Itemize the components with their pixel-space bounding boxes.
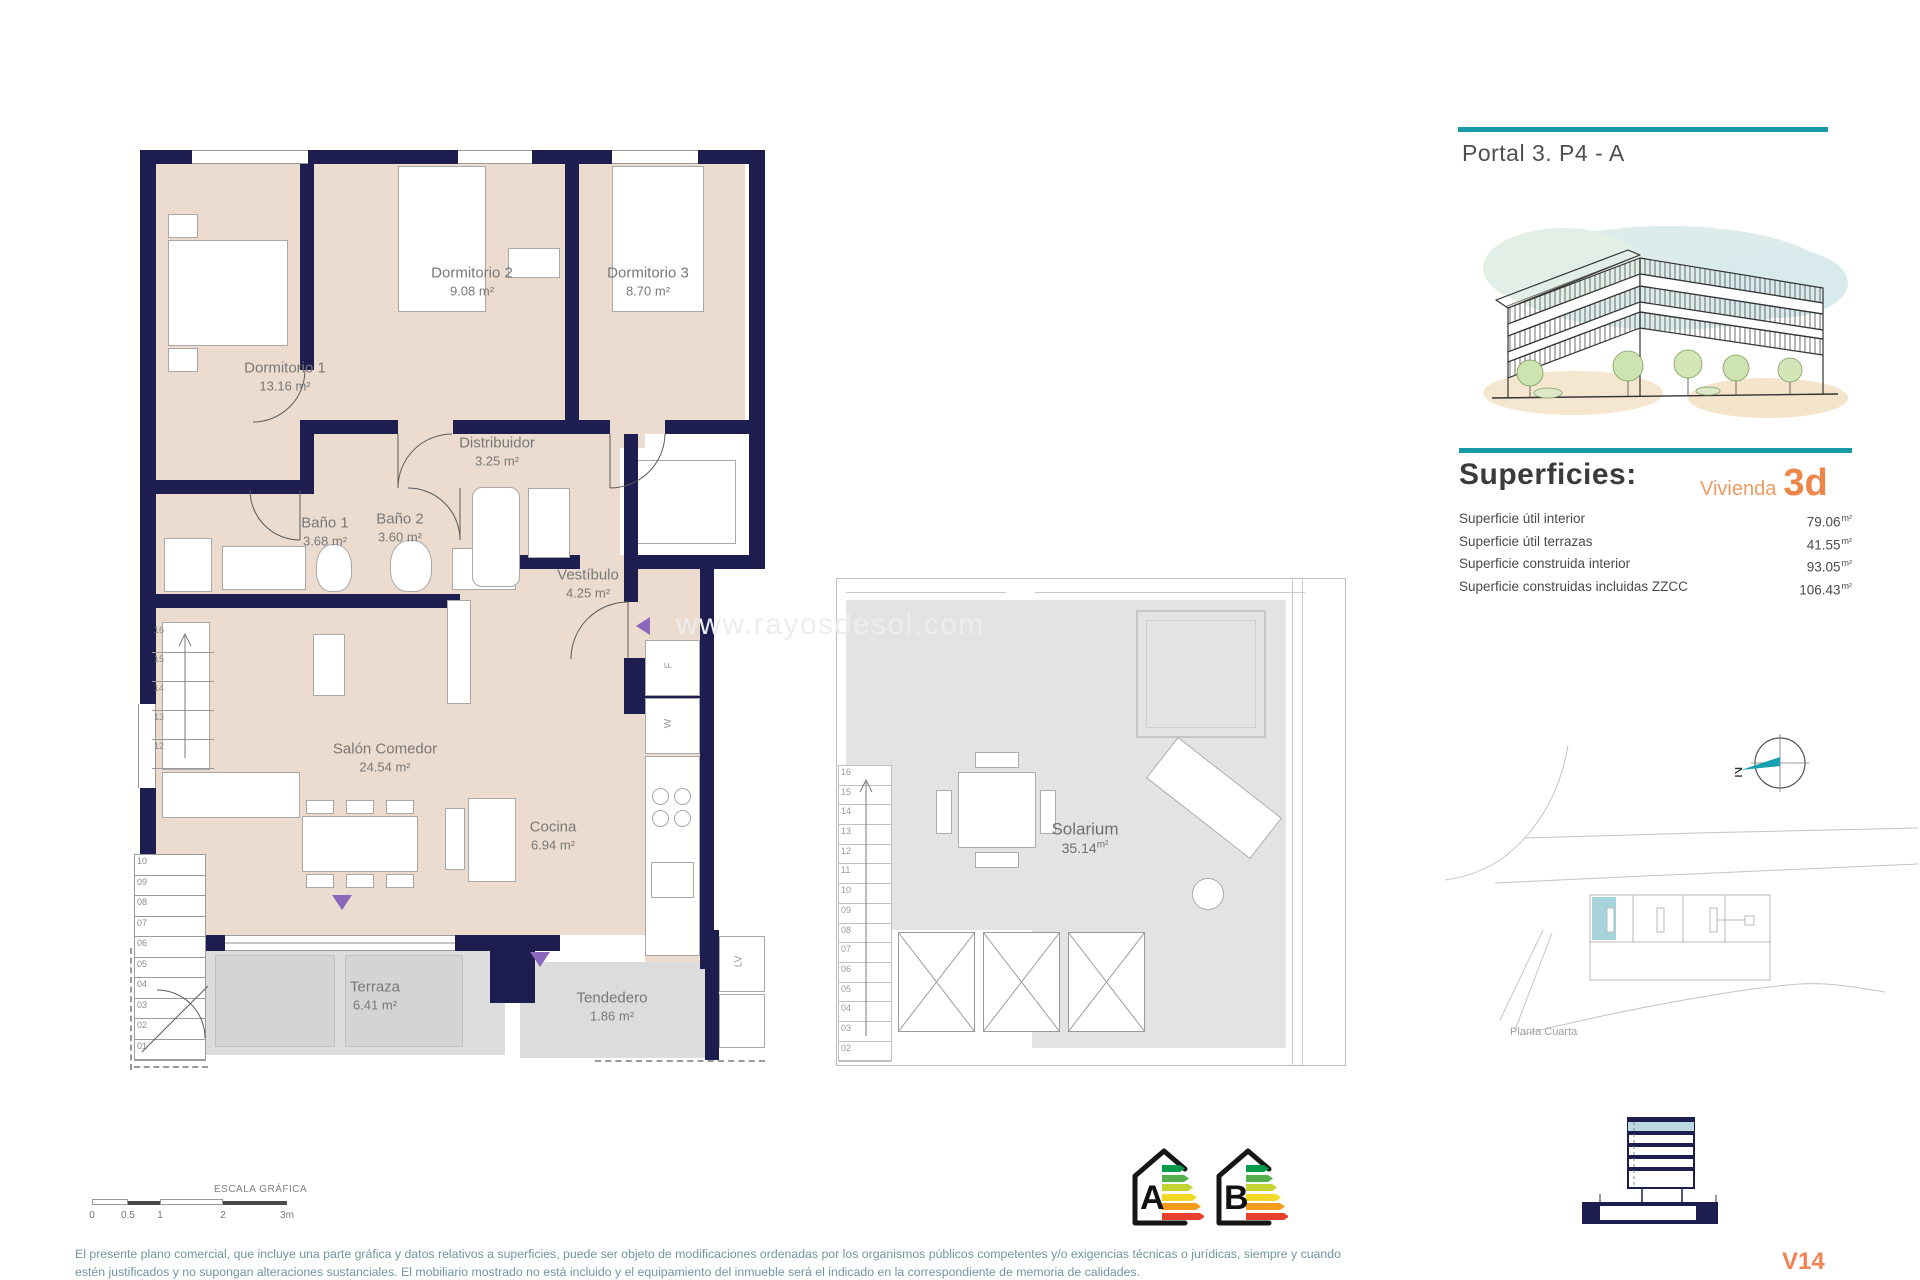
vivienda-code: Vivienda 3d <box>1700 462 1828 505</box>
stair-tread: 14 <box>152 682 214 711</box>
superficies-row-label: Superficie útil terrazas <box>1459 532 1593 555</box>
watermark: www.rayosdesol.com <box>676 608 985 642</box>
site-plan <box>1440 740 1920 1050</box>
stair-tread: 12 <box>152 740 214 769</box>
site-boundary-lines <box>1445 745 1918 1035</box>
superficies-table: Superficie útil interior 79.06m² Superfi… <box>1459 509 1852 599</box>
scale-tick: 1 <box>157 1210 163 1221</box>
scale-segment <box>223 1201 287 1205</box>
stair-tread: 13 <box>152 711 214 740</box>
stair-tread: 14 <box>839 805 891 825</box>
disclaimer-line-1: El presente plano comercial, que incluye… <box>75 1247 1341 1261</box>
stair-tread: 05 <box>135 958 205 979</box>
stair-tread: 03 <box>135 999 205 1020</box>
entry-marker <box>636 617 650 635</box>
stair-tread: 16 <box>152 624 214 653</box>
vivienda-number: 3d <box>1783 462 1827 505</box>
fridge-letter: F <box>664 662 675 668</box>
superficies-row: Superficie construida interior 93.05m² <box>1459 554 1852 577</box>
door-marker-terraza <box>332 895 352 910</box>
stair-tread: 09 <box>135 876 205 897</box>
stair-tread: 03 <box>839 1022 891 1042</box>
superficies-row-value: 93.05m² <box>1807 554 1852 577</box>
stair-tread: 02 <box>135 1019 205 1040</box>
stair-tread: 08 <box>135 896 205 917</box>
solarium-chair <box>975 852 1019 868</box>
room-label-dormitorio-1: Dormitorio 113.16 m² <box>244 360 326 395</box>
stair-tread: 07 <box>839 943 891 963</box>
pergola-inner <box>1146 620 1256 728</box>
superficies-row-label: Superficie construida interior <box>1459 554 1630 577</box>
superficies-title: Superficies: <box>1459 458 1637 492</box>
site-plan-caption: Planta Cuarta <box>1510 1026 1577 1038</box>
room-label-solarium: Solarium 35.14m² <box>1051 818 1118 857</box>
dishwasher-letter: LV <box>733 956 744 968</box>
vivienda-label: Vivienda <box>1700 478 1776 501</box>
stair-tread: 04 <box>839 1002 891 1022</box>
stair-tread: 13 <box>839 825 891 845</box>
stair-tread: 11 <box>839 864 891 884</box>
scale-tick: 2 <box>220 1210 226 1221</box>
highlighted-floor <box>1628 1122 1694 1131</box>
stair-tread: 10 <box>135 855 205 876</box>
stair-tread: 12 <box>839 845 891 865</box>
energy-rating-a-icon: A <box>1128 1143 1204 1235</box>
stairs-lower: 10090807060504030201 <box>134 854 206 1061</box>
building-section-icon <box>1570 1098 1730 1238</box>
stair-tread: 06 <box>135 937 205 958</box>
stair-tread: 06 <box>839 963 891 983</box>
room-label-dormitorio-2: Dormitorio 29.08 m² <box>431 265 513 300</box>
room-label-terraza: Terraza6.41 m² <box>350 979 400 1014</box>
energy-rating-b-icon: B <box>1212 1143 1288 1235</box>
solarium-stairs: 161514131211100908070605040302 <box>838 765 892 1062</box>
washer-letter: W <box>663 719 674 728</box>
scale-segment <box>128 1201 160 1205</box>
superficies-row: Superficie construidas incluidas ZZCC 10… <box>1459 577 1852 600</box>
parapet-line <box>1292 578 1293 1066</box>
stair-tread: 16 <box>839 766 891 786</box>
parapet-line <box>1302 578 1303 1066</box>
solarium-chair <box>975 752 1019 768</box>
superficies-row-label: Superficie construidas incluidas ZZCC <box>1459 577 1688 600</box>
stair-tread: 01 <box>135 1040 205 1061</box>
solarium-table <box>958 772 1036 848</box>
room-label-salon-comedor: Salón Comedor24.54 m² <box>333 741 437 776</box>
void-skylight <box>1068 932 1145 1032</box>
scale-tick: 3m <box>280 1210 294 1221</box>
scale-segment <box>92 1199 128 1205</box>
stair-tread: 05 <box>839 983 891 1003</box>
solarium-chair <box>936 790 952 834</box>
stair-tread: 08 <box>839 924 891 944</box>
teal-rule-superficies <box>1459 448 1852 453</box>
superficies-row-value: 79.06m² <box>1807 509 1852 532</box>
stair-tread: 15 <box>152 653 214 682</box>
teal-rule-top <box>1458 127 1828 132</box>
stair-tread: 15 <box>839 786 891 806</box>
scale-tick: 0.5 <box>121 1210 135 1221</box>
superficies-row: Superficie útil terrazas 41.55m² <box>1459 532 1852 555</box>
stair-tread: 07 <box>135 917 205 938</box>
superficies-row: Superficie útil interior 79.06m² <box>1459 509 1852 532</box>
building-sketch <box>1478 208 1852 446</box>
stairs-upper: 1615141312 <box>152 624 214 769</box>
superficies-row-value: 106.43m² <box>1799 577 1852 600</box>
room-label-dormitorio-3: Dormitorio 38.70 m² <box>607 265 689 300</box>
building-footprint <box>1590 895 1770 980</box>
disclaimer-line-2: estén justificados y no supongan alterac… <box>75 1265 1140 1279</box>
stair-tread: 09 <box>839 904 891 924</box>
version-code: V14 <box>1782 1248 1825 1276</box>
scale-tick: 0 <box>89 1210 95 1221</box>
plan-sheet: 1615141312 10090807060504030201 F W LV D… <box>0 0 1920 1280</box>
stair-tread: 04 <box>135 978 205 999</box>
stair-tread: 02 <box>839 1042 891 1062</box>
portal-title: Portal 3. P4 - A <box>1462 140 1625 167</box>
parapet-line <box>846 592 1006 593</box>
room-label-vestibulo: Vestíbulo4.25 m² <box>557 567 619 602</box>
parapet-line <box>1035 592 1305 593</box>
superficies-row-label: Superficie útil interior <box>1459 509 1585 532</box>
void-skylight <box>898 932 975 1032</box>
energy-letter-b: B <box>1224 1179 1249 1217</box>
stair-tread: 10 <box>839 884 891 904</box>
scale-bar-title: ESCALA GRÁFICA <box>214 1184 307 1195</box>
room-label-cocina: Cocina6.94 m² <box>530 819 577 854</box>
room-label-bano-1: Baño 13.68 m² <box>301 515 349 550</box>
parasol <box>1192 878 1224 910</box>
superficies-row-value: 41.55m² <box>1807 532 1852 555</box>
door-marker-tendedero <box>530 952 550 967</box>
void-skylight <box>983 932 1060 1032</box>
scale-segment <box>160 1199 223 1205</box>
room-label-distribuidor: Distribuidor3.25 m² <box>459 435 535 470</box>
room-label-bano-2: Baño 23.60 m² <box>376 511 424 546</box>
room-label-tendedero: Tendedero1.86 m² <box>577 990 648 1025</box>
energy-letter-a: A <box>1140 1179 1165 1217</box>
